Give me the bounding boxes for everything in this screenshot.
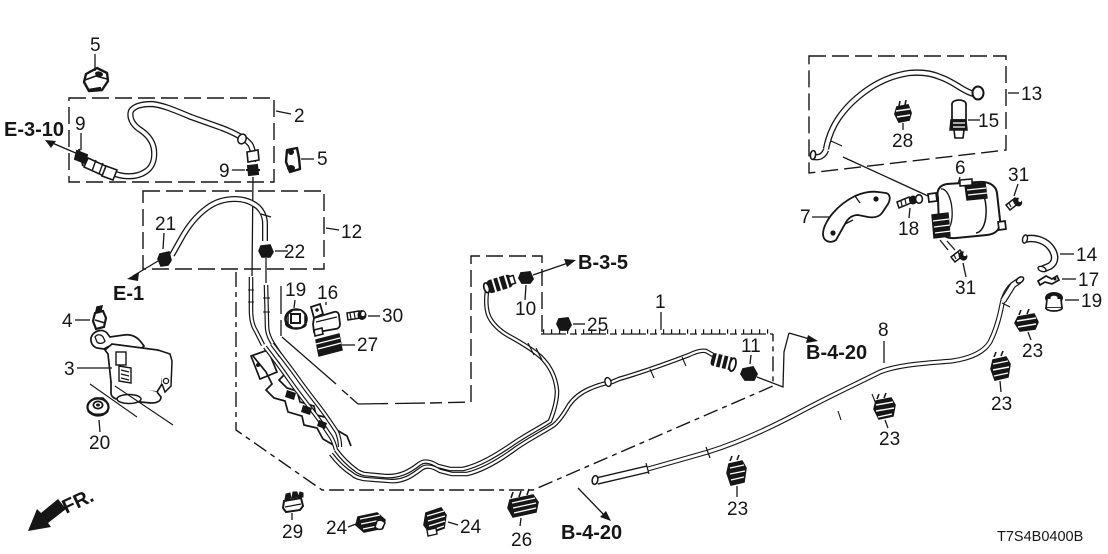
- svg-text:11: 11: [741, 336, 761, 357]
- svg-text:14: 14: [1076, 245, 1098, 266]
- svg-text:4: 4: [62, 311, 73, 332]
- svg-text:31: 31: [1008, 165, 1029, 186]
- svg-text:B-4-20: B-4-20: [806, 342, 867, 364]
- svg-text:25: 25: [587, 315, 608, 336]
- svg-text:13: 13: [1021, 84, 1042, 105]
- svg-text:23: 23: [727, 499, 748, 520]
- svg-text:27: 27: [357, 335, 378, 356]
- svg-text:5: 5: [317, 149, 328, 170]
- svg-text:23: 23: [1022, 341, 1043, 362]
- svg-text:18: 18: [898, 219, 919, 240]
- svg-text:B-3-5: B-3-5: [578, 252, 628, 274]
- svg-text:15: 15: [978, 111, 999, 132]
- svg-text:23: 23: [991, 394, 1012, 415]
- svg-text:5: 5: [90, 35, 101, 56]
- svg-text:T7S4B0400B: T7S4B0400B: [997, 529, 1083, 545]
- svg-text:17: 17: [1078, 270, 1099, 291]
- svg-text:20: 20: [89, 433, 110, 454]
- svg-text:19: 19: [1081, 291, 1102, 312]
- svg-text:23: 23: [879, 429, 900, 450]
- svg-text:10: 10: [515, 299, 536, 320]
- svg-text:9: 9: [219, 161, 230, 182]
- svg-text:24: 24: [460, 517, 482, 538]
- svg-text:8: 8: [878, 320, 889, 341]
- svg-text:30: 30: [382, 306, 403, 327]
- svg-text:12: 12: [341, 222, 362, 243]
- svg-text:29: 29: [282, 522, 303, 543]
- svg-text:B-4-20: B-4-20: [561, 522, 622, 544]
- svg-text:6: 6: [955, 158, 966, 179]
- svg-text:28: 28: [892, 131, 913, 152]
- svg-text:19: 19: [285, 280, 306, 301]
- svg-text:9: 9: [75, 114, 86, 135]
- svg-text:3: 3: [64, 359, 75, 380]
- svg-text:21: 21: [155, 214, 176, 235]
- svg-text:7: 7: [800, 207, 811, 228]
- svg-text:24: 24: [326, 518, 348, 539]
- svg-text:E-1: E-1: [113, 283, 144, 305]
- svg-text:31: 31: [955, 278, 976, 299]
- svg-text:1: 1: [655, 292, 666, 313]
- svg-text:16: 16: [317, 283, 338, 304]
- svg-text:E-3-10: E-3-10: [4, 119, 64, 141]
- svg-text:22: 22: [284, 242, 305, 263]
- svg-text:26: 26: [511, 530, 532, 551]
- svg-text:2: 2: [294, 106, 305, 127]
